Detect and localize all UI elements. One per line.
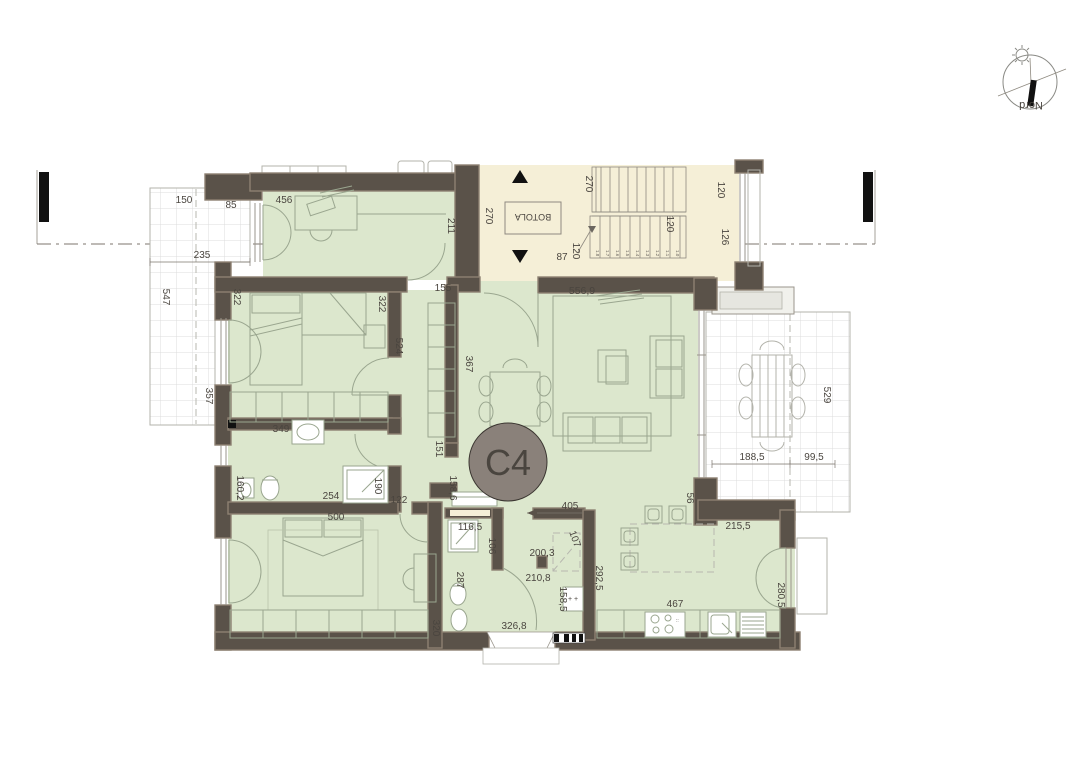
svg-text:1.6: 1.6 (615, 250, 620, 257)
dim-211: 211 (445, 218, 456, 234)
dim-158-5: 158,5 (557, 586, 568, 611)
dim-547: 547 (160, 289, 171, 306)
dim-280-5: 280,5 (775, 582, 786, 607)
sink (708, 612, 736, 637)
dim-270-left: 270 (483, 208, 494, 225)
dim-116-5: 116,5 (458, 522, 483, 533)
dim-120-window: 120 (715, 182, 726, 199)
dim-150: 150 (176, 195, 193, 206)
dim-405: 405 (562, 501, 579, 512)
dim-254: 254 (323, 491, 340, 502)
svg-text:1.2: 1.2 (655, 250, 660, 257)
dim-126: 126 (719, 229, 730, 246)
dim-56: 56 (684, 492, 695, 504)
dim-120-bottom: 120 (570, 243, 581, 260)
vent-grille (553, 633, 585, 643)
dim-200-3: 200,3 (529, 548, 554, 559)
dim-122: 122 (391, 495, 408, 506)
dim-292-5: 292,5 (593, 565, 604, 590)
svg-text:1.0: 1.0 (675, 250, 680, 257)
balcony-right (797, 538, 827, 614)
dim-456: 456 (276, 195, 293, 206)
dim-87: 87 (556, 252, 568, 263)
dim-322-right: 322 (376, 296, 387, 313)
dim-467: 467 (667, 599, 684, 610)
unit-badge: C4 (469, 423, 547, 501)
dim-326-8: 326,8 (501, 621, 526, 632)
botola-label: BOTOLA (515, 212, 551, 222)
dim-556-9: 556,9 (569, 285, 595, 297)
dim-215-5: 215,5 (725, 521, 750, 532)
dim-270-top: 270 (583, 176, 594, 193)
shaft-marker (228, 420, 236, 428)
floor-plan-page: Nord (0, 0, 1076, 780)
dim-529: 529 (821, 387, 832, 404)
dim-190: 190 (372, 478, 383, 495)
dim-151: 151 (433, 441, 444, 458)
dim-322-left: 322 (231, 289, 242, 306)
dim-188-5: 188,5 (739, 452, 764, 463)
bath1-window (221, 445, 226, 466)
floor-plan-drawing: Nord (0, 0, 1076, 780)
dim-500: 500 (328, 512, 345, 523)
dim-120-mid: 120 (664, 216, 675, 233)
compass-rose: Nord (998, 45, 1066, 111)
sun-icon (1012, 45, 1032, 65)
dim-85: 85 (225, 200, 237, 211)
cooktop: :: (645, 612, 685, 637)
dim-367: 367 (463, 356, 474, 373)
dim-158-6: 158,6 (447, 475, 458, 500)
svg-text:1.1: 1.1 (665, 250, 670, 257)
stair-window (740, 170, 760, 266)
dim-357: 357 (203, 388, 214, 405)
bottom-window (483, 632, 559, 664)
dim-349: 349 (273, 424, 290, 435)
dim-524: 524 (393, 338, 404, 355)
svg-text:1.3: 1.3 (645, 250, 650, 257)
section-marker-right (745, 170, 875, 244)
svg-text:::: :: (676, 618, 679, 624)
dim-155: 155 (435, 283, 452, 294)
dim-320-bedroom2: 320 (430, 620, 441, 637)
svg-text:1.5: 1.5 (625, 250, 630, 257)
dishwasher (740, 612, 766, 637)
svg-text:1.4: 1.4 (635, 250, 640, 257)
svg-text:1.7: 1.7 (605, 250, 610, 257)
tread-numbers: 1.8 1.7 1.6 1.5 1.4 1.3 1.2 1.1 1.0 (595, 250, 680, 257)
dim-287: 287 (454, 572, 465, 589)
dim-210-8: 210,8 (525, 573, 550, 584)
living-terrace-glazing (697, 310, 706, 478)
unit-label: C4 (485, 442, 531, 483)
dim-106: 106 (486, 538, 497, 555)
svg-text:1.8: 1.8 (595, 250, 600, 257)
svg-text:+ +: + + (568, 596, 578, 603)
dim-160-2: 160,2 (234, 475, 245, 500)
dim-99-5: 99,5 (804, 452, 824, 463)
dim-235: 235 (194, 250, 211, 261)
compass-north-label: Nord (1019, 99, 1043, 111)
toilet2 (451, 609, 467, 631)
